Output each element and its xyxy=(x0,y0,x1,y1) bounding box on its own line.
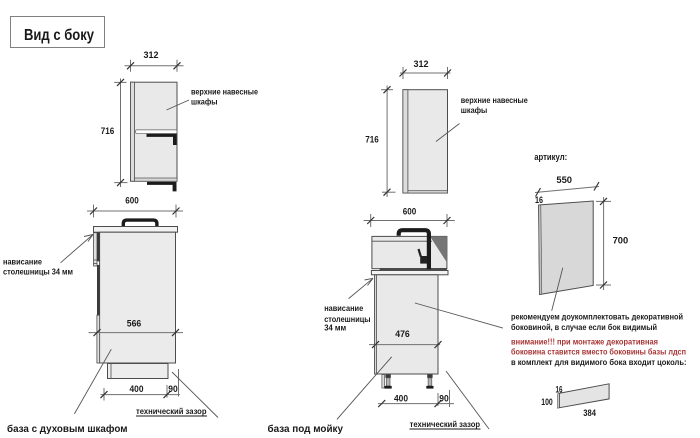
svg-text:384: 384 xyxy=(583,408,596,418)
svg-text:внимание!!! при монтаже декора: внимание!!! при монтаже декоративная xyxy=(511,336,658,346)
svg-text:34 мм: 34 мм xyxy=(324,322,346,332)
svg-text:база под мойку: база под мойку xyxy=(268,423,344,435)
svg-text:верхние навесные: верхние навесные xyxy=(461,95,528,105)
svg-text:верхние навесные: верхние навесные xyxy=(191,86,258,96)
svg-text:16: 16 xyxy=(535,195,543,205)
svg-text:база с духовым шкафом: база с духовым шкафом xyxy=(7,423,128,435)
svg-text:90: 90 xyxy=(439,394,449,405)
svg-text:716: 716 xyxy=(101,126,115,137)
svg-text:476: 476 xyxy=(395,329,410,340)
svg-text:90: 90 xyxy=(168,384,178,395)
svg-text:технический зазор: технический зазор xyxy=(136,406,207,416)
svg-text:нависание: нависание xyxy=(3,256,42,266)
svg-text:шкафы: шкафы xyxy=(461,105,488,115)
svg-text:100: 100 xyxy=(541,397,553,407)
svg-text:716: 716 xyxy=(365,135,379,146)
svg-text:312: 312 xyxy=(414,59,429,70)
svg-text:16: 16 xyxy=(556,384,563,394)
svg-text:в комплект для видимого бока в: в комплект для видимого бока входит цоко… xyxy=(511,357,687,367)
svg-text:400: 400 xyxy=(394,393,408,404)
svg-text:550: 550 xyxy=(556,175,572,186)
svg-text:боковина ставится вместо боков: боковина ставится вместо боковины базы л… xyxy=(511,346,686,356)
svg-text:Вид с боку: Вид с боку xyxy=(24,27,94,44)
svg-text:столешницы 34 мм: столешницы 34 мм xyxy=(3,266,73,276)
svg-text:400: 400 xyxy=(130,384,144,395)
svg-text:600: 600 xyxy=(403,207,417,218)
svg-text:566: 566 xyxy=(127,318,142,329)
svg-text:артикул:: артикул: xyxy=(534,152,567,162)
svg-text:нависание: нависание xyxy=(324,303,363,313)
svg-text:312: 312 xyxy=(144,50,159,61)
svg-text:600: 600 xyxy=(125,195,139,206)
svg-text:шкафы: шкафы xyxy=(191,96,218,106)
svg-text:боковиной, в случае если бок в: боковиной, в случае если бок видимый xyxy=(511,322,657,332)
svg-text:рекомендуем доукомплектовать д: рекомендуем доукомплектовать декоративно… xyxy=(511,311,683,321)
svg-text:технический зазор: технический зазор xyxy=(410,419,481,429)
svg-text:700: 700 xyxy=(613,235,629,246)
